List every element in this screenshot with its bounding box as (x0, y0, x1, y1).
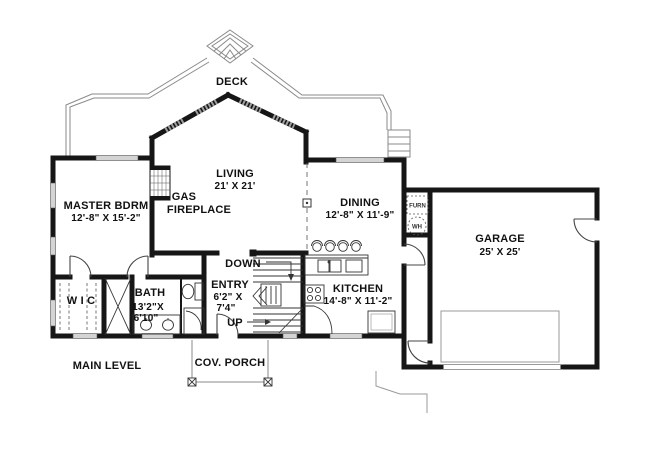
deck-label: DECK (216, 76, 248, 88)
stair-post (250, 250, 257, 257)
window (51, 237, 56, 255)
kitchen-hall-door (404, 244, 425, 265)
deck-steps-icon (388, 130, 410, 157)
walkway (376, 371, 427, 413)
room-divider (303, 163, 311, 250)
entry-dims-2: 7'4" (216, 303, 235, 314)
shower-icon (184, 308, 204, 334)
bath-dims-2: 6'10" (134, 313, 159, 324)
window (96, 156, 138, 161)
dining-dims: 12'-8" X 11'-9" (326, 210, 395, 221)
living-label: LIVING (216, 168, 254, 180)
floor-plan-canvas: FURN WH DECK LIVING 21' X 21' GAS FIREPL… (0, 0, 650, 471)
wic-door (70, 256, 91, 277)
window (336, 158, 384, 163)
bath-dims-1: 13'2"X (132, 302, 164, 313)
main-level-label: MAIN LEVEL (73, 360, 142, 372)
fireplace-icon (150, 166, 170, 200)
deck-stair-diamond-icon (207, 30, 253, 63)
porch-post-icon (264, 378, 272, 386)
deck-railing (66, 30, 410, 158)
bath-label: BATH (135, 287, 166, 299)
fireplace-label-1: GAS (172, 191, 196, 203)
master-label: MASTER BDRM (64, 200, 149, 212)
fireplace-label-2: FIREPLACE (167, 204, 231, 216)
dishwasher-icon (346, 260, 362, 272)
bar-stools-icon (312, 241, 362, 252)
utility-closet: FURN WH (407, 196, 428, 235)
furnace-label: FURN (409, 204, 426, 210)
refrigerator-icon (368, 311, 395, 333)
master-dims: 12'-8" X 15'-2" (71, 213, 141, 224)
window (330, 334, 362, 339)
wic-label: W I C (67, 295, 96, 307)
down-label: DOWN (225, 258, 261, 270)
wic-rods (60, 283, 96, 331)
entry-dims-1: 6'2" X (214, 292, 243, 303)
garage-door-panel (441, 311, 559, 362)
linen-closet-icon (105, 278, 131, 335)
water-heater-label: WH (412, 225, 422, 231)
sink-icon (318, 260, 341, 272)
window (51, 183, 56, 208)
kitchen-label: KITCHEN (333, 283, 383, 295)
up-label: UP (227, 317, 243, 329)
porch-label: COV. PORCH (195, 357, 266, 369)
floor-plan-drawing: FURN WH DECK LIVING 21' X 21' GAS FIREPL… (0, 0, 650, 471)
kitchen-dims: 14'-8" X 11'-2" (324, 296, 393, 307)
window (283, 334, 297, 339)
garage-label: GARAGE (475, 233, 524, 245)
corner-counter (304, 306, 332, 334)
bath-door (127, 256, 148, 277)
hall-garage-door (408, 341, 430, 363)
garage-dims: 25' X 25' (479, 247, 520, 258)
garage-side-door (574, 219, 597, 242)
walls (53, 95, 597, 367)
entry-label: ENTRY (211, 279, 249, 291)
window (51, 300, 56, 326)
range-icon (304, 285, 324, 303)
window (73, 334, 97, 339)
living-dims: 21' X 21' (214, 181, 255, 192)
porch-post-icon (188, 378, 196, 386)
toilet-icon (182, 283, 203, 300)
dining-label: DINING (340, 197, 380, 209)
